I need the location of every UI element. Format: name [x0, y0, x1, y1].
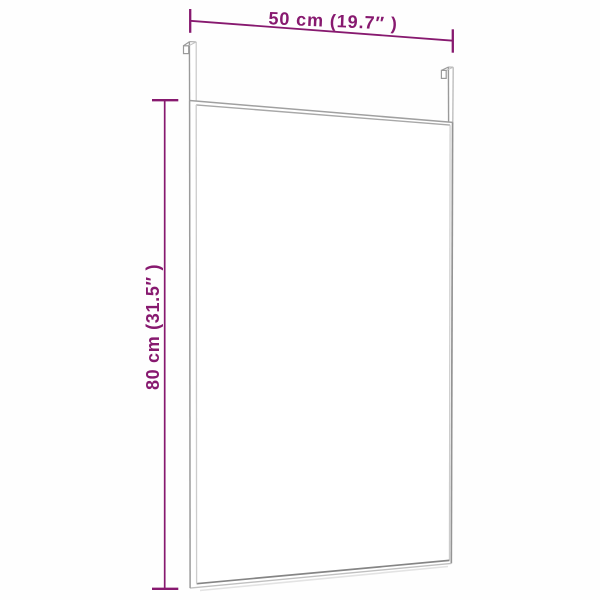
- svg-text:80 cm (31.5″ ): 80 cm (31.5″ ): [143, 265, 163, 391]
